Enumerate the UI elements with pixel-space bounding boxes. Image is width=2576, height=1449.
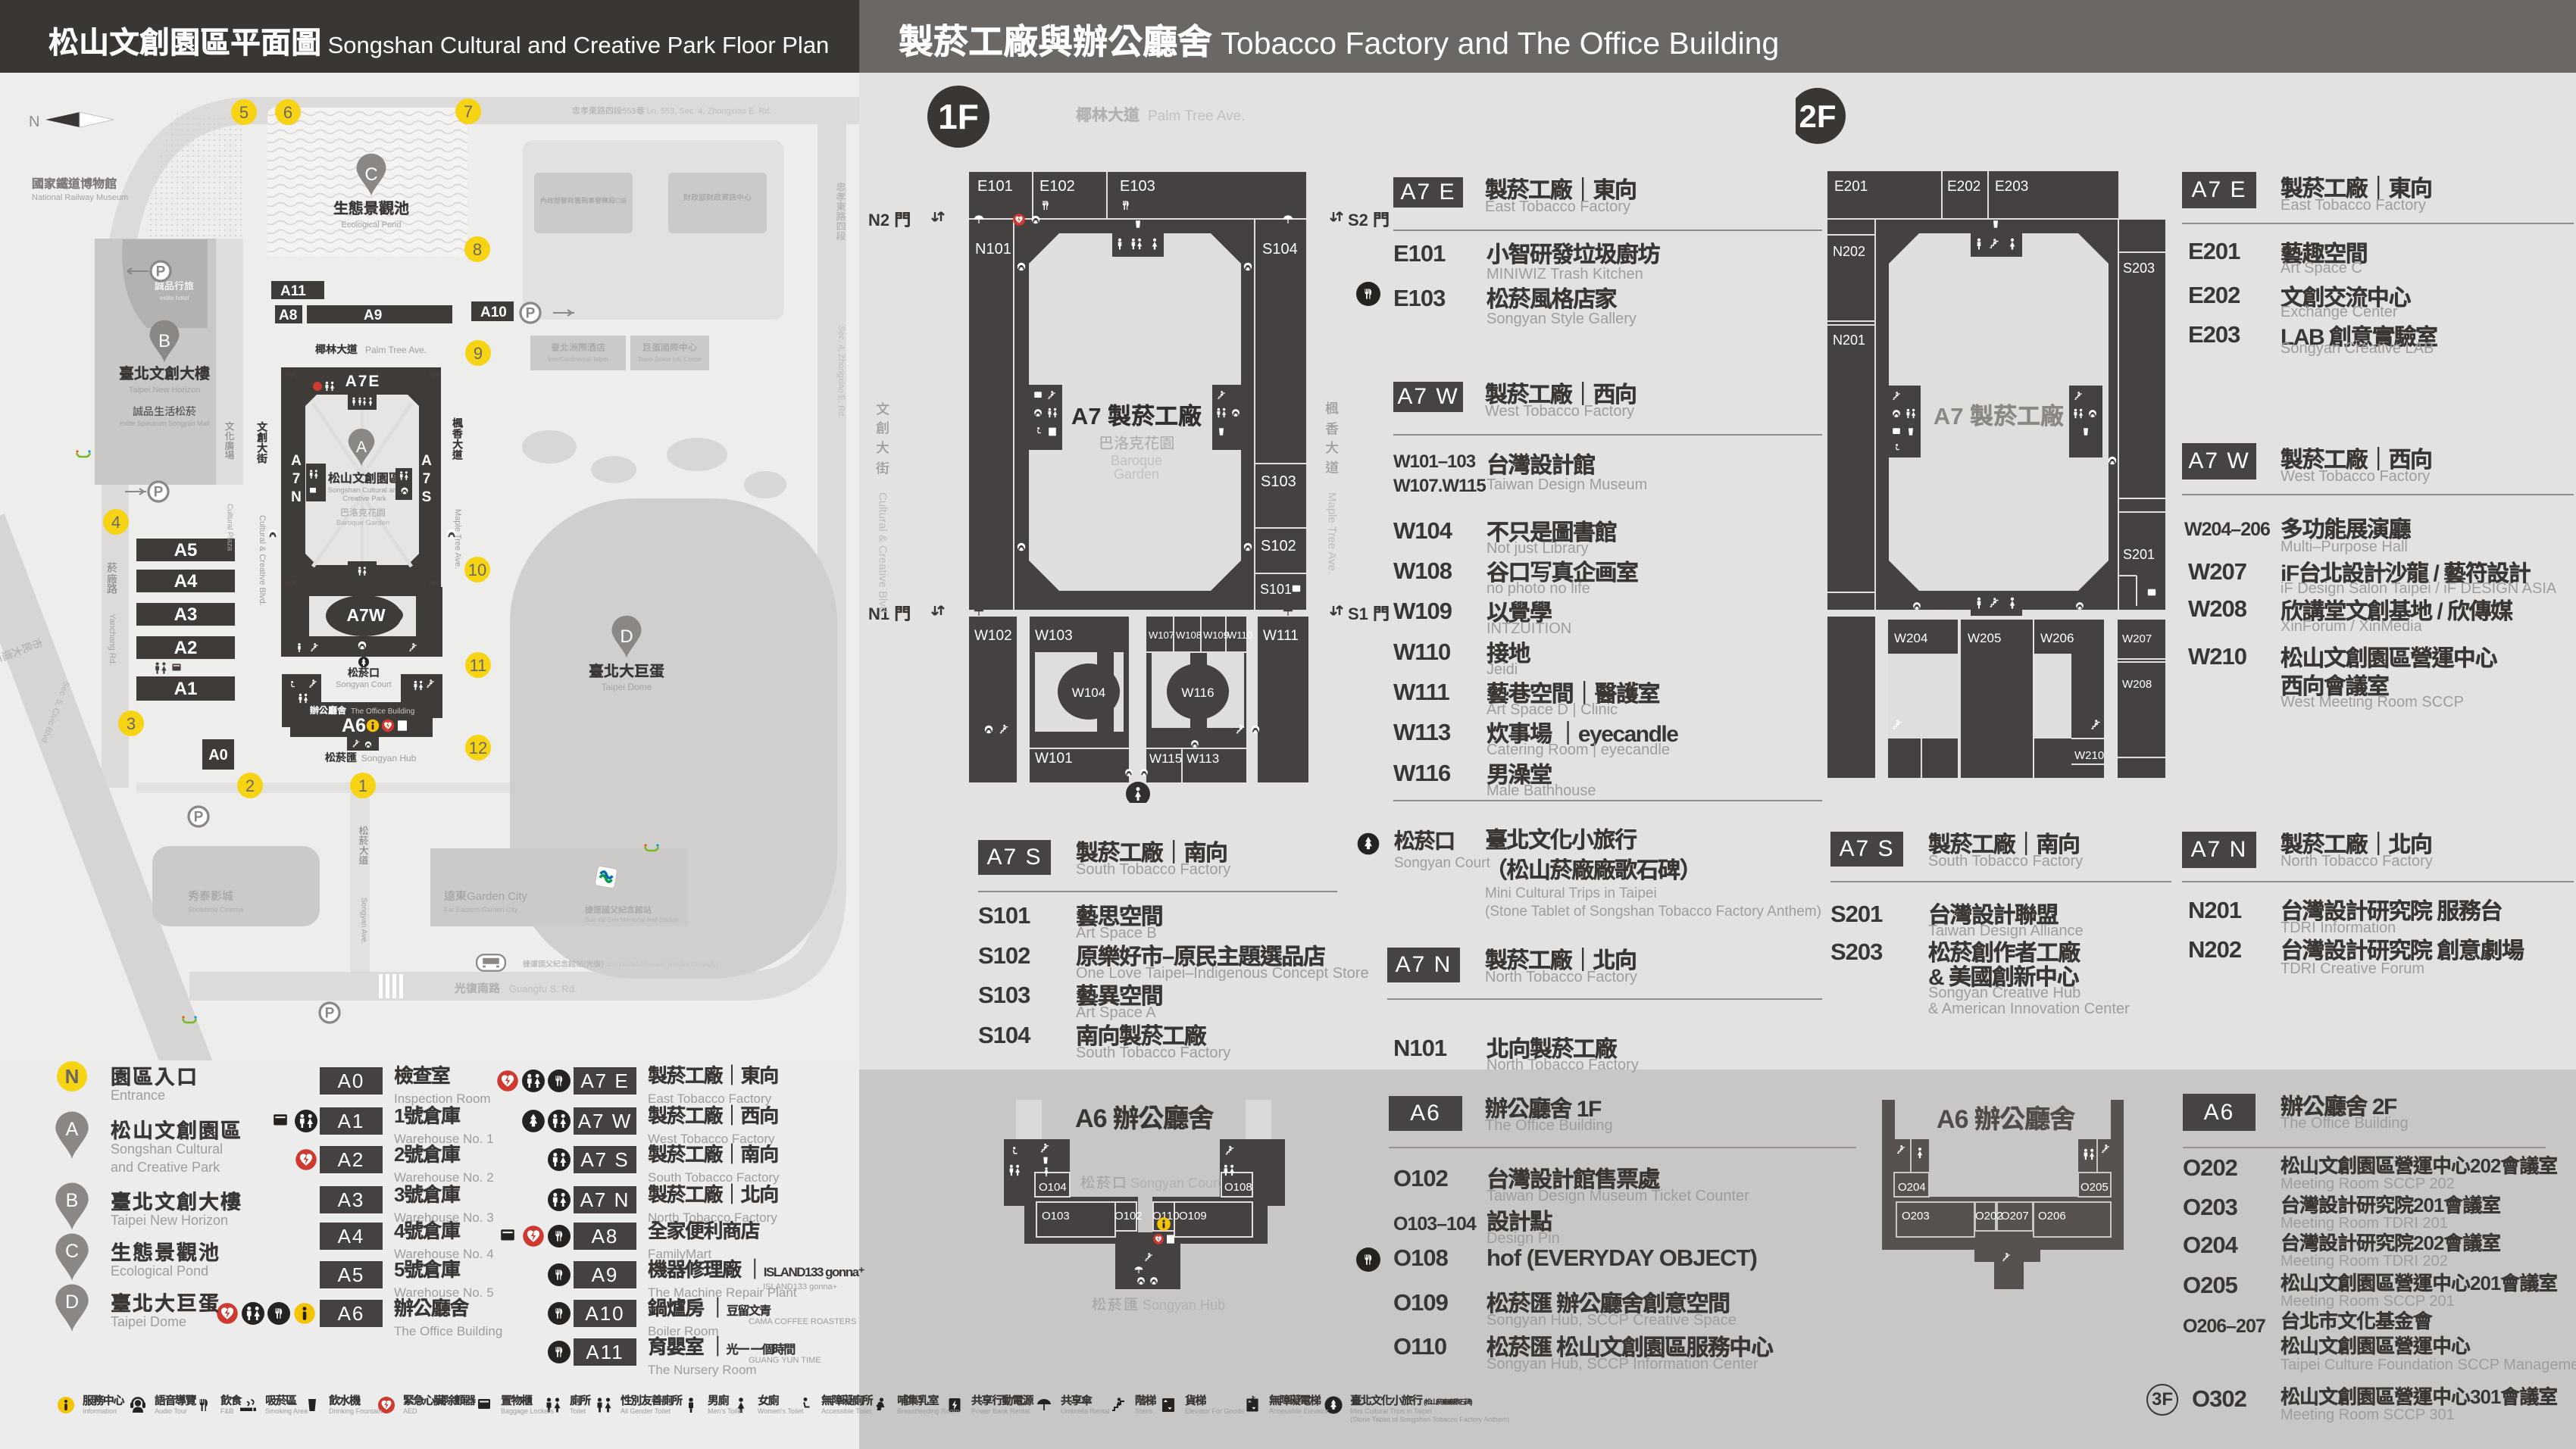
svg-text:1: 1 [358,776,367,795]
svg-text:S203: S203 [2123,261,2155,276]
svg-text:楓香大道: 楓香大道 [450,417,465,461]
svg-text:N2 門: N2 門 [868,207,911,231]
svg-text:O204: O204 [1898,1181,1926,1194]
svg-text:W205: W205 [1968,631,2001,645]
svg-text:N202: N202 [1833,244,1865,259]
svg-text:9: 9 [474,344,483,363]
svg-text:A5: A5 [174,540,198,561]
svg-text:Songyan Ave.: Songyan Ave. [360,898,368,945]
svg-text:松菸口: 松菸口 [348,665,380,680]
svg-text:7: 7 [423,471,431,487]
svg-text:Songyan Hub: Songyan Hub [1143,1298,1225,1313]
svg-text:Sec. 4, Zhongxiao E. Rd.: Sec. 4, Zhongxiao E. Rd. [836,326,846,418]
svg-text:S102: S102 [1261,538,1296,554]
svg-text:W111: W111 [1263,628,1299,644]
svg-text:巴洛克花園: 巴洛克花園 [340,506,386,519]
svg-text:7: 7 [292,471,301,487]
svg-text:A7 製菸工廠: A7 製菸工廠 [1934,397,2065,431]
svg-text:秀泰影城: 秀泰影城 [188,888,233,904]
svg-text:2F: 2F [1799,98,1836,134]
svg-text:松菸匯: 松菸匯 [325,750,357,765]
svg-text:S103: S103 [1261,473,1296,490]
svg-text:Garden: Garden [1114,467,1159,482]
svg-text:10: 10 [468,561,486,579]
svg-text:A2: A2 [174,638,198,658]
svg-text:Songyan Court: Songyan Court [1130,1176,1221,1191]
svg-text:A11: A11 [280,283,306,299]
svg-text:A6: A6 [342,715,366,736]
svg-text:N101: N101 [975,241,1011,258]
svg-text:巴洛克花園: 巴洛克花園 [1099,431,1174,453]
svg-text:4: 4 [111,513,120,532]
svg-text:6: 6 [283,103,292,122]
svg-text:Baroque: Baroque [1111,453,1162,468]
svg-text:Cultural & Creative Blvd.: Cultural & Creative Blvd. [877,492,889,616]
svg-text:S2 門: S2 門 [1348,207,1390,231]
svg-text:Guangfu S. Rd.: Guangfu S. Rd. [509,983,577,995]
svg-text:文化廣場: 文化廣場 [223,420,237,461]
svg-text:遠東Garden City: 遠東Garden City [444,888,528,904]
svg-text:O102: O102 [1114,1210,1143,1223]
svg-text:Cultural Plaza: Cultural Plaza [226,504,234,551]
svg-text:Palm Tree Ave.: Palm Tree Ave. [1148,108,1246,124]
svg-text:A9: A9 [364,308,382,323]
svg-text:生態景觀池: 生態景觀池 [333,196,410,218]
svg-text:文創大街: 文創大街 [873,401,893,480]
svg-text:National Railway Museum: National Railway Museum [32,193,128,202]
svg-text:A0: A0 [208,747,228,764]
svg-text:椰林大道: 椰林大道 [314,342,358,357]
svg-text:A: A [421,453,432,469]
svg-text:Songyan Hub: Songyan Hub [361,753,417,764]
svg-text:A: A [291,453,302,469]
svg-text:Sun Yat-Sen Memorial Hall Stat: Sun Yat-Sen Memorial Hall Station [585,917,678,923]
svg-text:松菸口: 松菸口 [1080,1172,1128,1192]
svg-text:S201: S201 [2123,547,2155,562]
svg-text:N201: N201 [1833,333,1865,348]
svg-text:W206: W206 [2040,631,2074,645]
svg-text:松山文創園區: 松山文創園區 [328,468,401,486]
svg-text:椰林大道: 椰林大道 [1075,103,1140,126]
svg-text:W210: W210 [2074,749,2104,762]
svg-text:N: N [65,1065,80,1088]
svg-text:W108: W108 [1176,629,1202,641]
svg-text:菸廠路: 菸廠路 [105,562,120,594]
svg-text:W110: W110 [1227,629,1252,641]
svg-text:A6 辦公廳舍: A6 辦公廳舍 [1937,1098,2075,1135]
svg-text:A7E: A7E [345,373,381,390]
svg-text:A1: A1 [174,679,198,699]
svg-text:W109: W109 [1203,629,1229,641]
svg-text:1F: 1F [938,97,979,136]
svg-text:松菸匯: 松菸匯 [1092,1294,1140,1314]
svg-text:光復南路: 光復南路 [454,980,501,996]
svg-text:忠孝東路四段553巷 Ln. 553, Sec. 4, Zh: 忠孝東路四段553巷 Ln. 553, Sec. 4, Zhongxiao E.… [571,105,772,117]
svg-text:Yanchang Rd.: Yanchang Rd. [108,614,117,666]
svg-text:松菸大道: 松菸大道 [357,826,371,865]
svg-text:A4: A4 [174,571,198,592]
svg-text:Cultural & Creative Blvd.: Cultural & Creative Blvd. [258,515,267,606]
svg-text:E102: E102 [1039,178,1075,195]
svg-text:12: 12 [469,739,487,757]
svg-text:E101: E101 [977,178,1013,195]
svg-text:2: 2 [245,776,255,795]
svg-text:Showtime Cinema: Showtime Cinema [188,906,243,913]
svg-text:B: B [66,1190,79,1211]
svg-text:W115: W115 [1149,751,1182,766]
svg-text:O109: O109 [1179,1210,1207,1223]
svg-text:臺北文創大樓: 臺北文創大樓 [119,361,210,383]
svg-text:W208: W208 [2122,678,2152,691]
svg-text:Taipei New Horizon: Taipei New Horizon [129,386,201,395]
svg-text:7: 7 [464,102,473,121]
svg-text:Taipei Dome Intl. Center: Taipei Dome Intl. Center [637,356,702,363]
svg-text:財政部財政資訊中心: 財政部財政資訊中心 [683,191,752,202]
svg-text:Songshan Cultural and: Songshan Cultural and [328,486,402,495]
svg-text:A8: A8 [279,308,297,323]
svg-text:8: 8 [473,240,482,259]
svg-text:N: N [29,114,39,130]
svg-text:Far Eastern Garden City: Far Eastern Garden City [444,906,518,913]
svg-text:C: C [364,164,377,185]
svg-text:A3: A3 [174,604,198,625]
svg-text:O103: O103 [1042,1210,1070,1223]
svg-text:Baroque Garden: Baroque Garden [336,519,389,527]
svg-text:W103: W103 [1035,628,1073,644]
svg-text:捷運國父紀念館站: 捷運國父紀念館站 [585,904,652,916]
svg-text:eslite hotel: eslite hotel [160,295,189,301]
svg-text:eslite Spectrum Songyan Mall: eslite Spectrum Songyan Mall [119,420,209,427]
svg-text:W101: W101 [1035,751,1073,767]
svg-text:W113: W113 [1186,751,1219,766]
svg-text:O104: O104 [1039,1181,1067,1194]
svg-text:O108: O108 [1224,1181,1252,1194]
svg-text:O207: O207 [2001,1210,2029,1223]
svg-text:Ecological Pond: Ecological Pond [342,220,402,230]
svg-text:S1 門: S1 門 [1348,601,1390,625]
svg-text:E203: E203 [1995,179,2028,195]
svg-text:楓香大道: 楓香大道 [1322,401,1342,480]
svg-text:N1 門: N1 門 [868,601,911,625]
svg-text:O203: O203 [1902,1210,1930,1223]
svg-text:Taipei Dome: Taipei Dome [602,682,652,692]
svg-text:E202: E202 [1947,179,1980,195]
svg-text:內政部警政署刑事警察局CIB: 內政部警政署刑事警察局CIB [540,195,627,205]
svg-text:A7 製菸工廠: A7 製菸工廠 [1071,397,1202,431]
svg-text:Songyan Court: Songyan Court [336,680,391,689]
svg-text:文創大街: 文創大街 [255,420,270,464]
svg-text:S104: S104 [1262,241,1298,258]
svg-text:Palm Tree Ave.: Palm Tree Ave. [365,345,427,355]
svg-text:A7W: A7W [346,605,385,625]
svg-text:A: A [356,439,367,456]
svg-text:Maple Tree Ave.: Maple Tree Ave. [1326,492,1339,574]
svg-text:臺北大巨蛋: 臺北大巨蛋 [589,659,664,681]
svg-text:E103: E103 [1120,178,1155,195]
svg-text:S: S [422,489,432,505]
svg-text:W107: W107 [1149,629,1174,641]
svg-text:W104: W104 [1072,685,1105,700]
svg-text:忠孝東路四段: 忠孝東路四段 [834,182,849,241]
svg-text:臺北洲際酒店: 臺北洲際酒店 [551,341,605,354]
svg-text:InterContinental Taipei: InterContinental Taipei [548,356,608,363]
svg-text:W204: W204 [1894,631,1927,645]
svg-text:11: 11 [470,656,487,675]
svg-text:巨蛋國際中心: 巨蛋國際中心 [642,341,698,354]
svg-text:A6 辦公廳舍: A6 辦公廳舍 [1075,1098,1214,1135]
svg-text:O205: O205 [2080,1181,2109,1194]
svg-text:N: N [291,489,302,505]
svg-text:D: D [65,1291,79,1313]
svg-text:A10: A10 [480,304,507,320]
svg-text:C: C [65,1241,79,1262]
svg-text:W207: W207 [2122,632,2152,645]
svg-text:S101: S101 [1260,582,1292,597]
svg-text:D: D [620,626,633,647]
svg-text:A: A [66,1119,79,1140]
svg-text:3: 3 [127,714,136,733]
svg-text:W116: W116 [1181,685,1214,700]
svg-text:E201: E201 [1834,179,1868,195]
svg-text:誠品生活松菸: 誠品生活松菸 [133,404,196,419]
svg-text:國家鐵道博物館: 國家鐵道博物館 [32,173,117,192]
svg-text:Creative Park: Creative Park [342,495,386,503]
svg-text:O206: O206 [2038,1210,2066,1223]
svg-text:Maple Tree Ave.: Maple Tree Ave. [453,509,462,569]
svg-text:5: 5 [239,103,249,122]
svg-text:B: B [158,331,170,351]
svg-text:O202: O202 [1975,1210,2003,1223]
svg-text:W102: W102 [974,628,1012,644]
